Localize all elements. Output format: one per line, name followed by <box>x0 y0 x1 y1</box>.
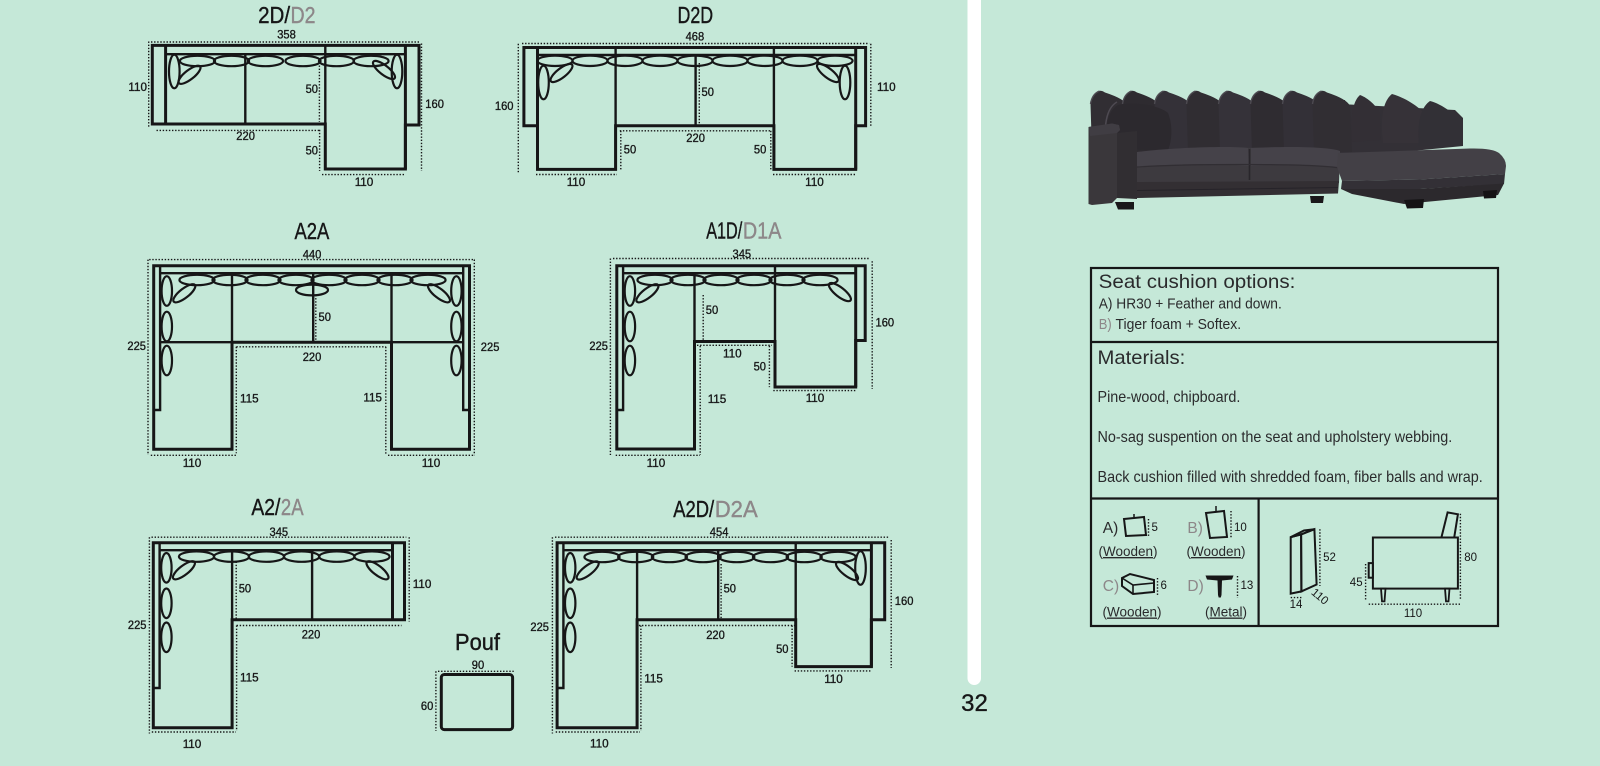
svg-text:225: 225 <box>589 339 608 353</box>
svg-text:110: 110 <box>567 175 586 189</box>
svg-text:Tiger foam + Softex.: Tiger foam + Softex. <box>1116 317 1242 333</box>
svg-text:32: 32 <box>961 690 988 717</box>
svg-text:345: 345 <box>270 525 289 539</box>
svg-text:13: 13 <box>1241 580 1254 592</box>
svg-text:50: 50 <box>702 85 714 99</box>
svg-text:50: 50 <box>754 143 766 157</box>
svg-text:5: 5 <box>1152 522 1158 534</box>
svg-text:160: 160 <box>876 315 895 329</box>
svg-text:110: 110 <box>128 80 147 94</box>
svg-text:6: 6 <box>1161 580 1167 592</box>
svg-text:2D/: 2D/ <box>258 2 290 28</box>
svg-text:115: 115 <box>240 391 259 405</box>
svg-text:110: 110 <box>806 391 825 405</box>
svg-text:A2D/: A2D/ <box>673 496 714 522</box>
svg-text:D2A: D2A <box>715 496 758 522</box>
svg-text:D): D) <box>1187 578 1203 595</box>
svg-text:(Wooden): (Wooden) <box>1186 544 1245 559</box>
svg-text:110: 110 <box>723 347 742 361</box>
svg-text:110: 110 <box>877 80 896 94</box>
svg-text:(Metal): (Metal) <box>1205 605 1247 620</box>
svg-text:50: 50 <box>239 581 251 595</box>
svg-text:220: 220 <box>706 628 725 642</box>
svg-text:220: 220 <box>686 131 705 145</box>
svg-text:225: 225 <box>530 620 549 634</box>
svg-text:220: 220 <box>303 350 322 364</box>
svg-text:110: 110 <box>183 737 202 751</box>
svg-text:110: 110 <box>422 456 441 470</box>
svg-text:110: 110 <box>805 175 824 189</box>
svg-text:A): A) <box>1103 520 1119 537</box>
svg-text:D2: D2 <box>291 2 316 28</box>
svg-text:14: 14 <box>1290 599 1303 611</box>
svg-text:454: 454 <box>710 525 729 539</box>
svg-text:A2A: A2A <box>295 218 330 244</box>
svg-text:110: 110 <box>590 737 609 751</box>
svg-text:80: 80 <box>1464 552 1477 564</box>
svg-text:110: 110 <box>355 175 374 189</box>
svg-text:220: 220 <box>302 628 321 642</box>
svg-text:50: 50 <box>306 144 318 158</box>
svg-text:225: 225 <box>128 618 147 632</box>
svg-text:358: 358 <box>277 28 296 42</box>
svg-text:No-sag suspention on the seat: No-sag suspention on the seat and uphols… <box>1098 429 1453 446</box>
svg-text:50: 50 <box>754 359 766 373</box>
svg-text:(Wooden): (Wooden) <box>1098 544 1157 559</box>
svg-text:345: 345 <box>733 247 752 261</box>
svg-text:Back cushion filled with shred: Back cushion filled with shredded foam, … <box>1098 469 1483 486</box>
svg-text:2A: 2A <box>281 494 304 520</box>
svg-text:50: 50 <box>319 310 331 324</box>
svg-text:B): B) <box>1187 520 1203 537</box>
svg-text:115: 115 <box>363 391 382 405</box>
svg-text:115: 115 <box>644 671 663 685</box>
svg-text:225: 225 <box>481 340 500 354</box>
svg-text:110: 110 <box>183 456 202 470</box>
svg-text:52: 52 <box>1323 552 1336 564</box>
svg-text:225: 225 <box>127 339 146 353</box>
svg-text:60: 60 <box>421 699 433 713</box>
svg-text:110: 110 <box>647 456 666 470</box>
svg-text:115: 115 <box>240 671 259 685</box>
svg-text:Seat cushion options:: Seat cushion options: <box>1099 271 1296 293</box>
svg-text:50: 50 <box>706 303 718 317</box>
svg-text:A) HR30 + Feather and down.: A) HR30 + Feather and down. <box>1099 297 1282 313</box>
svg-text:(Wooden): (Wooden) <box>1102 605 1161 620</box>
svg-text:110: 110 <box>413 577 432 591</box>
svg-text:160: 160 <box>425 97 444 111</box>
svg-text:110: 110 <box>1309 587 1331 608</box>
svg-text:45: 45 <box>1350 577 1363 589</box>
svg-text:160: 160 <box>895 594 914 608</box>
svg-text:90: 90 <box>472 658 484 672</box>
svg-text:110: 110 <box>1404 608 1422 620</box>
svg-text:D1A: D1A <box>743 218 782 244</box>
svg-text:A2/: A2/ <box>251 494 280 520</box>
svg-text:220: 220 <box>236 129 255 143</box>
svg-text:110: 110 <box>824 672 843 686</box>
svg-text:B): B) <box>1099 317 1112 333</box>
svg-text:D2D: D2D <box>678 2 714 28</box>
svg-text:440: 440 <box>303 248 322 262</box>
svg-text:50: 50 <box>306 82 318 96</box>
svg-text:A1D/: A1D/ <box>706 218 742 244</box>
svg-text:160: 160 <box>495 99 514 113</box>
svg-text:Materials:: Materials: <box>1098 347 1186 369</box>
svg-text:468: 468 <box>686 30 705 44</box>
svg-text:50: 50 <box>724 581 736 595</box>
svg-text:Pouf: Pouf <box>455 629 500 655</box>
svg-text:10: 10 <box>1234 522 1247 534</box>
svg-text:50: 50 <box>624 143 636 157</box>
svg-text:50: 50 <box>776 642 788 656</box>
svg-text:Pine-wood, chipboard.: Pine-wood, chipboard. <box>1098 389 1241 406</box>
svg-text:115: 115 <box>708 392 727 406</box>
svg-text:C): C) <box>1103 578 1119 595</box>
